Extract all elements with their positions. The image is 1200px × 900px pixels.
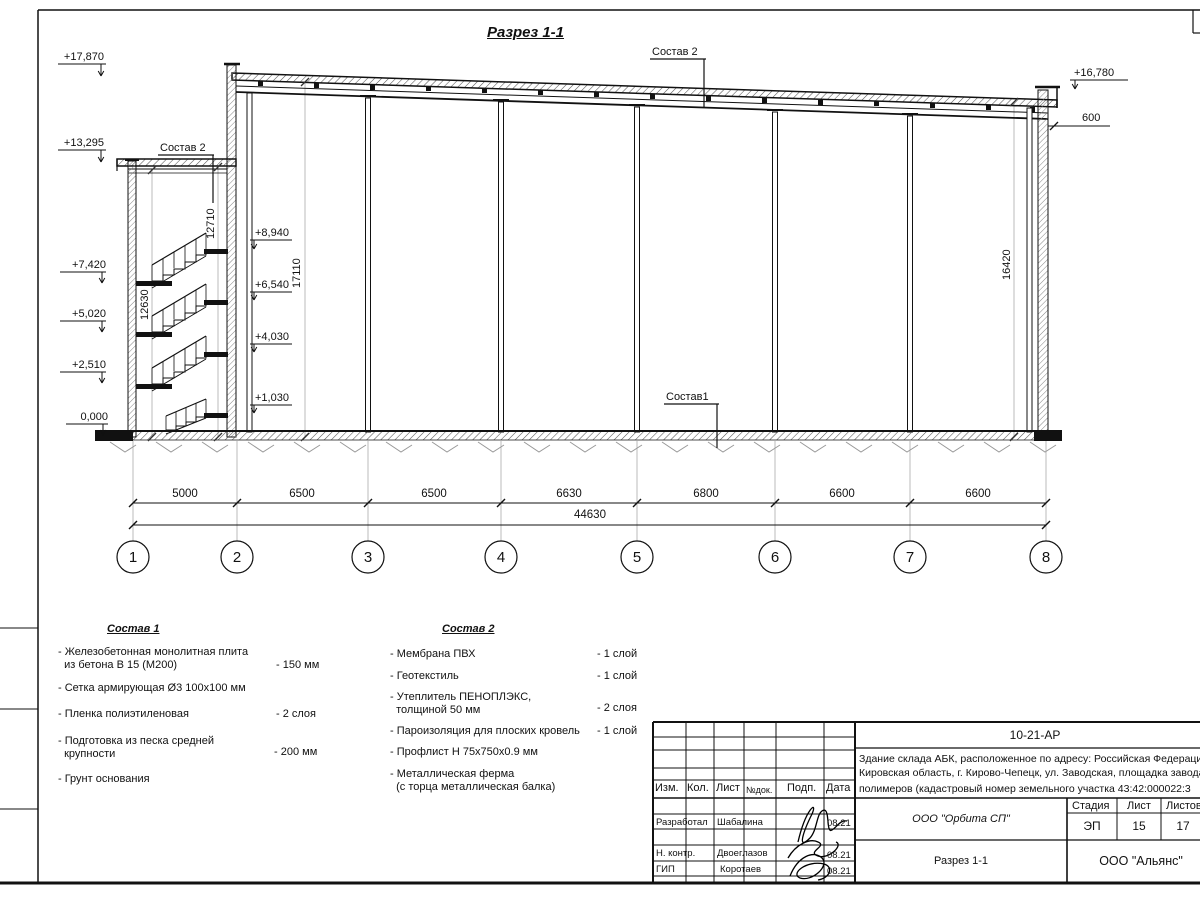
axis-dim: 6500 — [404, 488, 464, 500]
vertical-dim: 12710 — [205, 208, 218, 239]
ground-hatch — [110, 442, 1056, 452]
tb-object-line: Здание склада АБК, расположенное по адре… — [859, 753, 1200, 765]
axis-dim: 6600 — [948, 488, 1008, 500]
axis-number: 3 — [352, 549, 384, 566]
tb-object-line: Кировская область, г. Кирово-Чепецк, ул.… — [859, 767, 1200, 779]
axis-dim: 6500 — [272, 488, 332, 500]
tb-header-ndok: №док. — [746, 785, 772, 795]
main-roof — [232, 73, 1057, 119]
legend2-item-value: - 1 слой — [597, 670, 637, 683]
callout-sostav2-top: Состав 2 — [652, 46, 698, 59]
tb-header-izm: Изм. — [655, 782, 679, 794]
legend1-item: - Подготовка из песка средней крупности — [58, 735, 214, 760]
tb-contractor-org: ООО "Альянс" — [1067, 854, 1200, 868]
tb-role: Разработал — [656, 817, 708, 828]
parapet-dim-label: 600 — [1082, 112, 1100, 125]
elevation-label: +6,540 — [255, 279, 289, 292]
legend1-item-value: - 150 мм — [276, 659, 319, 672]
legend2-item: - Мембрана ПВХ — [390, 648, 475, 661]
total-dim: 44630 — [550, 509, 630, 521]
axis-number: 5 — [621, 549, 653, 566]
tb-object-line: полимеров (кадастровый номер земельного … — [859, 783, 1191, 795]
legend1-item: - Железобетонная монолитная плита из бет… — [58, 646, 248, 671]
legend1-item: - Сетка армирующая Ø3 100х100 мм — [58, 682, 246, 695]
tb-header-data: Дата — [826, 782, 850, 794]
tb-sheet-title: Разрез 1-1 — [855, 855, 1067, 867]
elevation-label: +8,940 — [255, 227, 289, 240]
legend2-item: - Пароизоляция для плоских кровель — [390, 725, 580, 738]
legend1-item-value: - 200 мм — [274, 746, 317, 759]
legend2-item: - Металлическая ферма (с торца металличе… — [390, 768, 555, 793]
legend2-item-value: - 2 слоя — [597, 702, 637, 715]
elevation-label: +1,030 — [255, 392, 289, 405]
tb-sheet-value: 15 — [1117, 819, 1161, 833]
drawing-sheet: { "title": "Разрез 1-1", "callouts": { "… — [0, 0, 1200, 900]
legend2-title: Состав 2 — [442, 623, 495, 636]
section-drawing-linework — [0, 0, 1200, 900]
elevation-label: +13,295 — [40, 137, 104, 150]
axis-number: 4 — [485, 549, 517, 566]
tb-name: Шабалина — [717, 817, 763, 828]
tb-role: Н. контр. — [656, 848, 695, 859]
stair-landings — [136, 249, 228, 418]
tb-name: Двоеглазов — [717, 848, 768, 859]
vertical-dim: 16420 — [1001, 249, 1014, 280]
axis-dim: 5000 — [155, 488, 215, 500]
tb-role: ГИП — [656, 864, 675, 875]
legend1-item: - Грунт основания — [58, 773, 150, 786]
axis-number: 7 — [894, 549, 926, 566]
tb-date: 08.21 — [827, 850, 851, 861]
axis-number: 6 — [759, 549, 791, 566]
legend1-title: Состав 1 — [107, 623, 160, 636]
legend1-item: - Пленка полиэтиленовая — [58, 708, 189, 721]
callout-sostav1: Состав1 — [666, 391, 709, 404]
callout-sostav2-left: Состав 2 — [160, 142, 206, 155]
tb-stage-label: Стадия — [1072, 800, 1110, 812]
vertical-dim-ticks — [148, 78, 1018, 441]
elevation-label: +5,020 — [42, 308, 106, 321]
tb-sheets-label: Листов — [1166, 800, 1200, 812]
axis-dim: 6630 — [539, 488, 599, 500]
axis-number: 2 — [221, 549, 253, 566]
drawing-title: Разрез 1-1 — [487, 24, 564, 41]
tb-sheet-label: Лист — [1127, 800, 1151, 812]
vertical-dim: 12630 — [139, 289, 152, 320]
axis-dim: 6600 — [812, 488, 872, 500]
elevation-label: +17,870 — [40, 51, 104, 64]
elevation-label: +4,030 — [255, 331, 289, 344]
floor-slab — [95, 430, 1062, 452]
axis-number: 1 — [117, 549, 149, 566]
elevation-label: +2,510 — [42, 359, 106, 372]
legend1-item-value: - 2 слоя — [276, 708, 316, 721]
tb-header-list: Лист — [716, 782, 740, 794]
walls-and-columns — [224, 64, 1060, 437]
elevation-label: +16,780 — [1074, 67, 1114, 80]
legend2-item-value: - 1 слой — [597, 648, 637, 661]
legend2-item-value: - 1 слой — [597, 725, 637, 738]
tb-sheets-value: 17 — [1161, 819, 1200, 833]
tb-header-kol: Кол. — [687, 782, 709, 794]
legend2-item: - Профлист Н 75х750х0.9 мм — [390, 746, 538, 759]
tb-date: 08.21 — [827, 818, 851, 829]
tb-date: 08.21 — [827, 866, 851, 877]
axis-dim: 6800 — [676, 488, 736, 500]
axis-number: 8 — [1030, 549, 1062, 566]
elevation-label: +7,420 — [42, 259, 106, 272]
tb-designer-org: ООО "Орбита СП" — [855, 813, 1067, 825]
vertical-dim: 17110 — [291, 258, 304, 288]
elevation-label: 0,000 — [44, 411, 108, 424]
tb-name: Коротаев — [720, 864, 761, 875]
tb-doc-code: 10-21-АР — [855, 728, 1200, 742]
legend2-item: - Утеплитель ПЕНОПЛЭКС, толщиной 50 мм — [390, 691, 531, 716]
tb-stage-value: ЭП — [1067, 819, 1117, 833]
tb-header-podp: Подп. — [787, 782, 816, 794]
legend2-item: - Геотекстиль — [390, 670, 459, 683]
